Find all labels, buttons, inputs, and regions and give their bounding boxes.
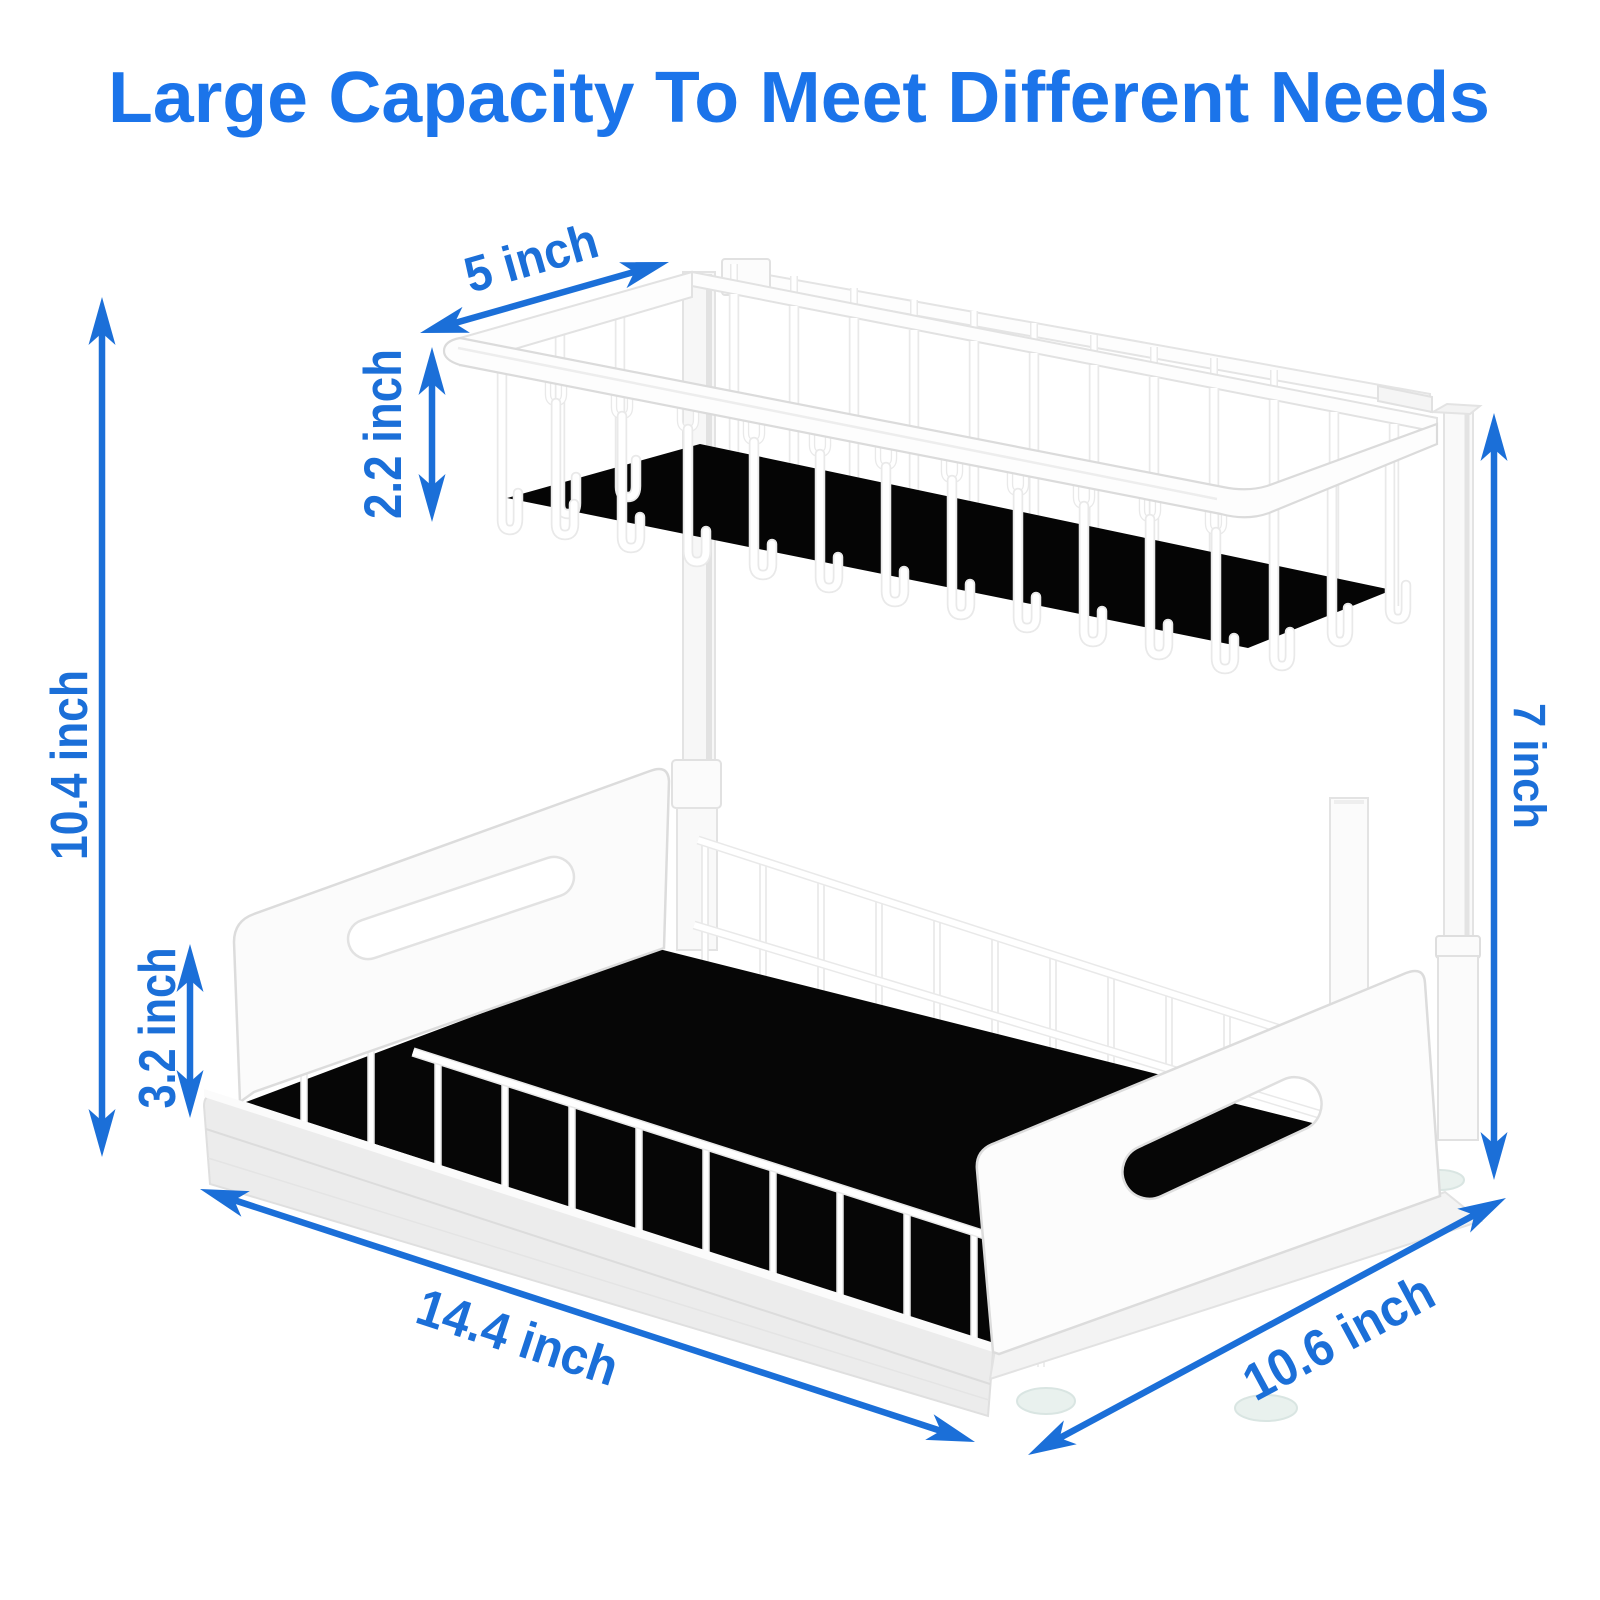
svg-text:7 inch: 7 inch — [1504, 703, 1555, 829]
svg-text:3.2 inch: 3.2 inch — [129, 948, 187, 1109]
svg-text:2.2 inch: 2.2 inch — [354, 349, 413, 519]
svg-text:Large Capacity To Meet Differe: Large Capacity To Meet Different Needs — [108, 58, 1490, 138]
svg-text:10.4 inch: 10.4 inch — [41, 670, 99, 860]
